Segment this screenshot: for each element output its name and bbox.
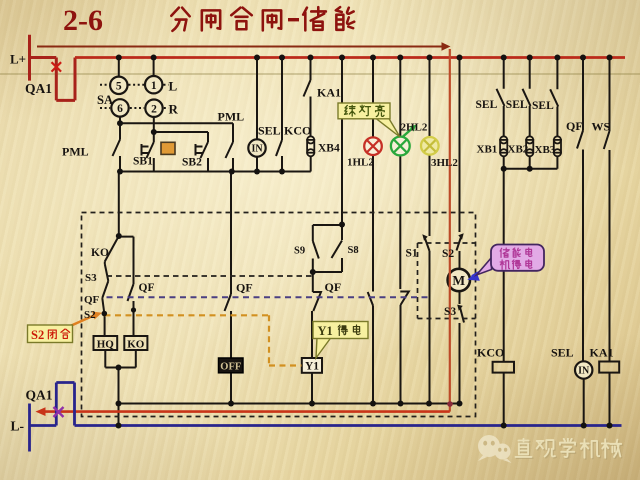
svg-text:S1: S1	[406, 248, 418, 260]
svg-text:WS: WS	[592, 119, 611, 133]
svg-text:Y1: Y1	[305, 360, 319, 372]
svg-text:Y1: Y1	[318, 324, 333, 338]
svg-text:QF: QF	[84, 294, 100, 306]
svg-text:QF: QF	[566, 119, 583, 133]
svg-text:SB1: SB1	[133, 156, 153, 168]
svg-text:S3: S3	[444, 306, 456, 318]
svg-text:KO: KO	[127, 338, 145, 350]
svg-text:QF: QF	[325, 280, 342, 294]
svg-text:QF: QF	[139, 282, 155, 294]
svg-text:XB1: XB1	[477, 143, 498, 155]
svg-text:2-6: 2-6	[63, 4, 103, 37]
svg-text:S9: S9	[294, 246, 305, 257]
svg-text:S2: S2	[84, 309, 96, 321]
svg-text:XB4: XB4	[318, 143, 340, 155]
svg-text:SA: SA	[97, 93, 113, 107]
svg-text:QA1: QA1	[26, 388, 53, 403]
svg-text:M: M	[452, 273, 465, 288]
svg-text:2: 2	[151, 104, 157, 116]
svg-text:SEL: SEL	[258, 124, 281, 138]
svg-text:1HL2: 1HL2	[347, 157, 374, 169]
svg-text:IN: IN	[578, 366, 590, 377]
svg-text:KCO: KCO	[284, 124, 311, 138]
svg-text:S3: S3	[85, 272, 97, 284]
svg-text:KA1: KA1	[590, 346, 614, 360]
svg-text:OFF: OFF	[220, 361, 241, 372]
svg-text:S2: S2	[31, 328, 44, 342]
svg-text:QA1: QA1	[25, 81, 52, 96]
svg-text:PML: PML	[62, 145, 89, 159]
svg-text:SEL: SEL	[476, 99, 498, 111]
svg-text:SEL: SEL	[506, 99, 528, 111]
svg-text:S8: S8	[348, 245, 359, 256]
svg-text:S2: S2	[442, 248, 454, 260]
svg-text:HQ: HQ	[97, 338, 115, 350]
svg-text:KO: KO	[91, 247, 109, 259]
svg-text:L: L	[169, 79, 178, 94]
svg-text:QF: QF	[236, 281, 253, 295]
svg-text:L+: L+	[10, 52, 26, 67]
svg-text:R: R	[169, 102, 179, 117]
svg-text:1: 1	[151, 80, 157, 92]
svg-text:IN: IN	[251, 144, 263, 155]
svg-text:XB3: XB3	[535, 144, 556, 156]
svg-text:KCO: KCO	[477, 346, 504, 360]
svg-text:SEL: SEL	[532, 100, 554, 112]
svg-text:SB2: SB2	[182, 157, 202, 169]
svg-text:3HL2: 3HL2	[431, 157, 458, 169]
svg-text:PML: PML	[218, 110, 245, 124]
svg-text:6: 6	[117, 103, 123, 115]
svg-text:SEL: SEL	[551, 346, 574, 360]
svg-text:L-: L-	[11, 419, 25, 434]
svg-text:KA1: KA1	[317, 86, 341, 100]
svg-text:XB2: XB2	[508, 143, 529, 155]
svg-text:2HL2: 2HL2	[401, 122, 428, 134]
svg-text:5: 5	[116, 81, 122, 93]
